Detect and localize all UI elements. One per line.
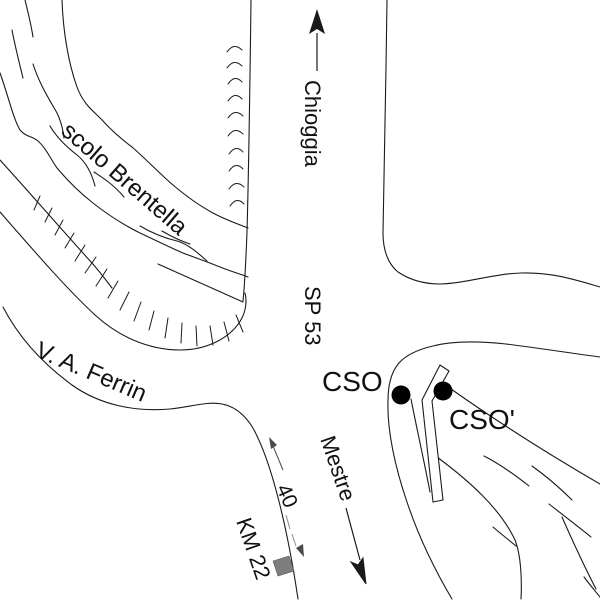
canal-scolo-brentella [0, 0, 248, 277]
water-line [33, 64, 64, 138]
km-marker-label: KM 22 [231, 514, 275, 582]
canal-label: scolo Brentella [56, 117, 193, 241]
sp53-left-edge [243, 0, 251, 301]
map-labels: scolo Brentella V. A. Ferrin Chioggia SP… [32, 80, 515, 583]
ditch-south-bank [437, 457, 521, 599]
route-label: SP 53 [300, 286, 325, 346]
kerb-arc-marks [227, 46, 244, 206]
south-arrow-icon [346, 508, 366, 584]
destination-south-label: Mestre [315, 432, 361, 504]
east-branch-south-mestre-east-edge [388, 342, 600, 599]
cso-prime-dot [434, 382, 453, 401]
water-line [549, 504, 591, 537]
destination-north-label: Chioggia [300, 80, 325, 168]
distance-label: 40 [271, 481, 302, 512]
water-line [12, 30, 23, 78]
north-arrow-icon [309, 9, 325, 71]
embankment-outer-u [0, 212, 246, 350]
embankment-inner-right [158, 264, 243, 302]
km-milestone-square [273, 556, 294, 576]
water-line [493, 527, 516, 546]
map-canvas: scolo Brentella V. A. Ferrin Chioggia SP… [0, 0, 600, 600]
embankment-hatching [34, 196, 243, 346]
cso-label: CSO [322, 366, 383, 397]
water-line [484, 456, 529, 486]
embankment-inner-left [0, 160, 112, 288]
cso-prime-label: CSO' [449, 404, 515, 435]
water-line [532, 466, 572, 500]
cso-dot [392, 386, 411, 405]
road-map: scolo Brentella V. A. Ferrin Chioggia SP… [0, 0, 600, 600]
water-line [25, 0, 33, 37]
sp53-right-edge-east-branch [383, 0, 600, 287]
